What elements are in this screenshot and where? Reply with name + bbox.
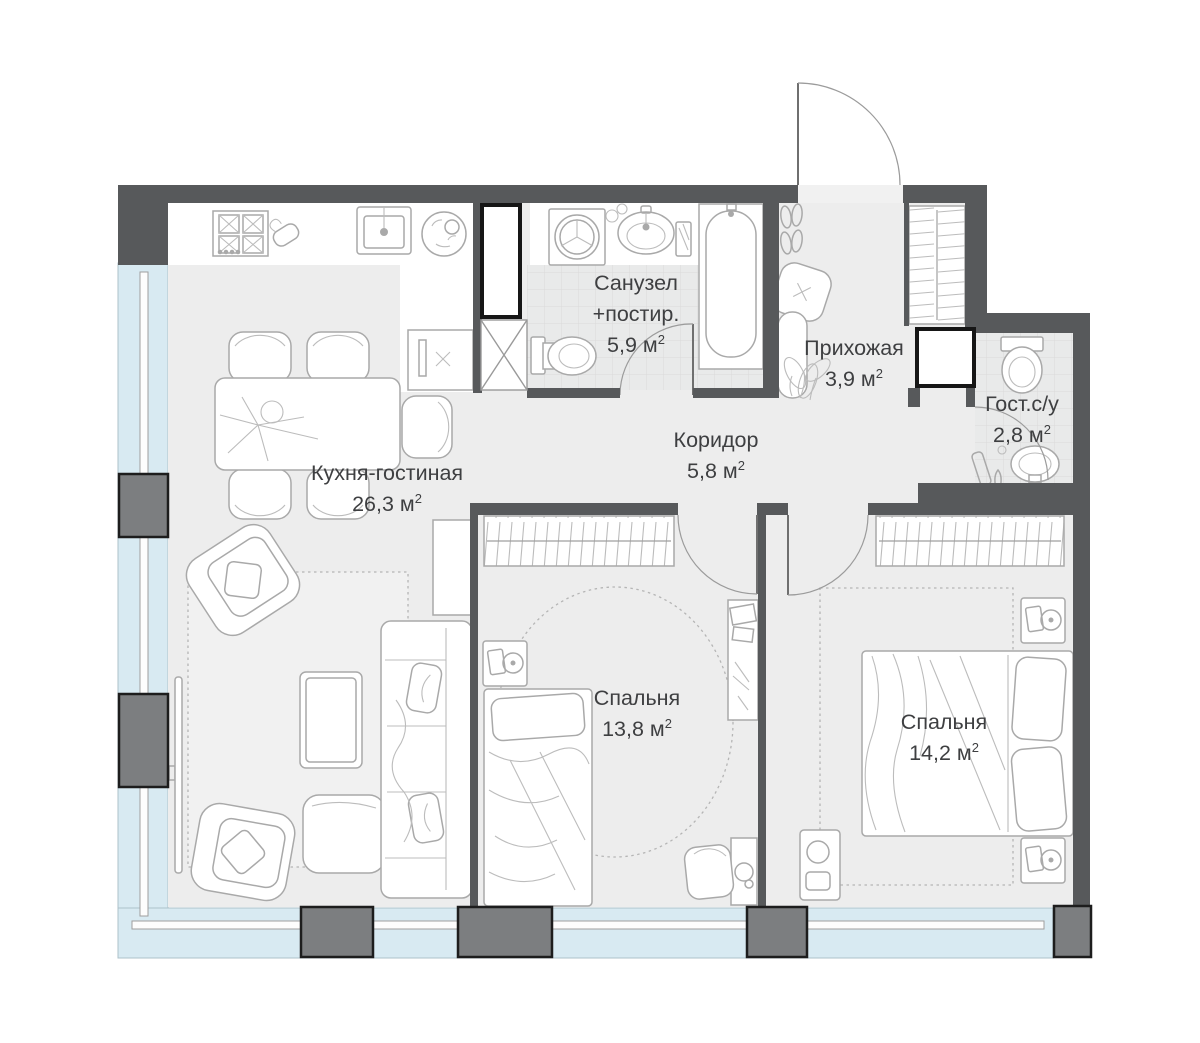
room-label-bedroom-1: Спальня 13,8 м2: [594, 683, 680, 745]
room-name: Коридор: [674, 425, 759, 456]
bed-icon: [484, 689, 592, 906]
wardrobe-icon: [909, 206, 965, 324]
room-area: 14,2 м2: [901, 738, 987, 769]
bathroom-sink-icon: [1011, 446, 1059, 483]
wardrobe-icon: [876, 516, 1064, 566]
floor-plan-page: Кухня-гостиная 26,3 м2 Санузел +постир. …: [0, 0, 1200, 1043]
chair-icon: [402, 396, 452, 458]
toilet-icon: [531, 337, 596, 375]
nightstand-icon: [1021, 838, 1065, 883]
washing-machine-icon: [549, 209, 605, 265]
coffee-table-icon: [300, 672, 362, 768]
room-name-2: +постир.: [593, 299, 680, 330]
room-label-guest-wc: Гост.с/у 2,8 м2: [985, 389, 1059, 451]
room-name: Гост.с/у: [985, 389, 1059, 420]
room-area: 13,8 м2: [594, 714, 680, 745]
room-label-bathroom: Санузел +постир. 5,9 м2: [593, 268, 680, 361]
ventilation-shaft-icon: [482, 205, 520, 317]
kitchen-sink-icon: [357, 207, 411, 254]
room-area: 5,9 м2: [593, 330, 680, 361]
armchair-icon: [188, 800, 298, 903]
room-name: Санузел: [593, 268, 680, 299]
room-area: 2,8 м2: [985, 420, 1059, 451]
room-label-bedroom-2: Спальня 14,2 м2: [901, 707, 987, 769]
room-area: 3,9 м2: [804, 364, 904, 395]
chair-icon: [229, 332, 291, 382]
door-arc: [798, 83, 900, 185]
chair-icon: [229, 469, 291, 519]
office-desk-icon: [683, 838, 757, 905]
room-name: Прихожая: [804, 333, 904, 364]
side-table-icon: [433, 520, 472, 615]
floor-plan: [0, 0, 1200, 1043]
nightstand-icon: [1021, 598, 1065, 643]
window-line: [140, 272, 148, 916]
ventilation-shaft-icon: [481, 320, 527, 390]
chair-icon: [307, 332, 369, 382]
dishwasher-icon: [408, 330, 473, 390]
room-area: 26,3 м2: [311, 489, 463, 520]
ventilation-shaft-icon: [917, 329, 974, 386]
ottoman-icon: [303, 795, 385, 873]
room-name: Кухня-гостиная: [311, 458, 463, 489]
wardrobe-icon: [484, 516, 674, 566]
room-area: 5,8 м2: [674, 456, 759, 487]
bathtub-icon: [699, 204, 763, 369]
room-label-corridor: Коридор 5,8 м2: [674, 425, 759, 487]
nightstand-icon: [483, 641, 527, 686]
entry-door: [798, 83, 900, 185]
room-name: Спальня: [901, 707, 987, 738]
room-label-kitchen-living: Кухня-гостиная 26,3 м2: [311, 458, 463, 520]
mirror-icon: [778, 312, 807, 398]
room-label-hallway: Прихожая 3,9 м2: [804, 333, 904, 395]
window-line: [132, 921, 1044, 929]
dressing-table-icon: [800, 830, 840, 900]
room-name: Спальня: [594, 683, 680, 714]
desk-icon: [728, 600, 758, 720]
sofa-icon: [381, 621, 472, 898]
toilet-icon: [1001, 337, 1043, 393]
